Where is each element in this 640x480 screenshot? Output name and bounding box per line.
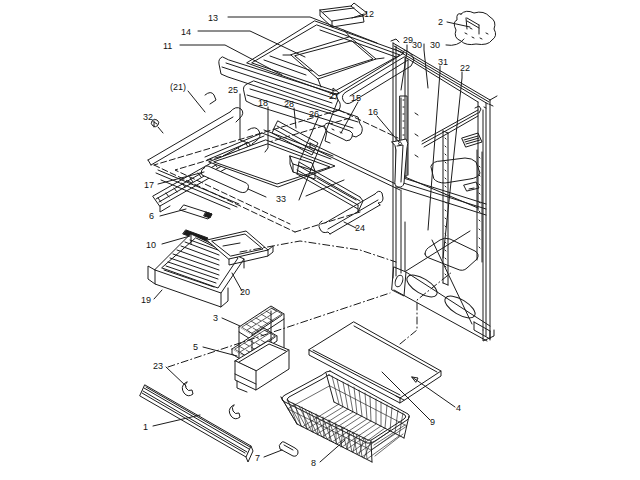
svg-text:15: 15 [351, 93, 361, 103]
svg-text:32: 32 [143, 112, 153, 122]
svg-text:(21): (21) [170, 82, 186, 92]
svg-text:18: 18 [258, 98, 268, 108]
svg-text:30: 30 [412, 40, 422, 50]
svg-text:6: 6 [149, 211, 154, 221]
svg-text:11: 11 [163, 41, 172, 51]
svg-text:13: 13 [208, 13, 218, 23]
svg-text:3: 3 [213, 313, 218, 323]
svg-text:20: 20 [240, 287, 250, 297]
svg-text:33: 33 [276, 194, 286, 204]
svg-text:28: 28 [284, 99, 294, 109]
svg-text:19: 19 [141, 295, 151, 305]
svg-text:16: 16 [368, 107, 378, 117]
svg-text:5: 5 [193, 342, 198, 352]
svg-text:12: 12 [364, 9, 374, 19]
svg-text:4: 4 [456, 403, 461, 413]
svg-text:8: 8 [311, 458, 316, 468]
svg-text:10: 10 [146, 240, 156, 250]
svg-text:24: 24 [355, 223, 365, 233]
svg-text:22: 22 [460, 63, 470, 73]
svg-text:25: 25 [228, 85, 238, 95]
svg-text:1: 1 [143, 422, 148, 432]
svg-text:30: 30 [430, 40, 440, 50]
svg-text:14: 14 [181, 27, 191, 37]
svg-text:2: 2 [438, 17, 443, 27]
svg-text:31: 31 [438, 57, 448, 67]
svg-text:23: 23 [153, 361, 163, 371]
svg-text:7: 7 [255, 453, 260, 463]
svg-text:9: 9 [430, 417, 435, 427]
svg-text:27: 27 [329, 91, 339, 101]
svg-text:17: 17 [144, 180, 154, 190]
svg-text:26: 26 [309, 109, 319, 119]
